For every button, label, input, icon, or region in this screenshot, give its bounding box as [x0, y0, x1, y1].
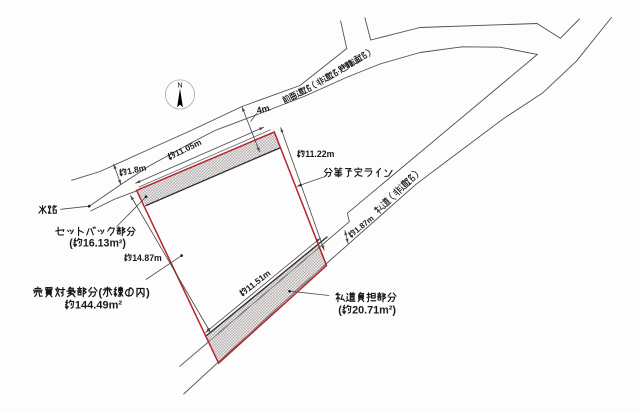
svg-text:(: (: [98, 287, 102, 299]
svg-text:20.71m²): 20.71m²): [352, 304, 396, 316]
svg-text:): ): [146, 287, 150, 299]
svg-text:144.49m²: 144.49m²: [75, 300, 122, 312]
svg-text:(: (: [338, 304, 342, 316]
svg-text:11.22m: 11.22m: [305, 149, 334, 159]
svg-text:16.13m²): 16.13m²): [83, 237, 126, 249]
svg-text:(: (: [69, 237, 73, 249]
svg-text:14.87m: 14.87m: [132, 253, 162, 263]
svg-text:N: N: [177, 81, 182, 90]
